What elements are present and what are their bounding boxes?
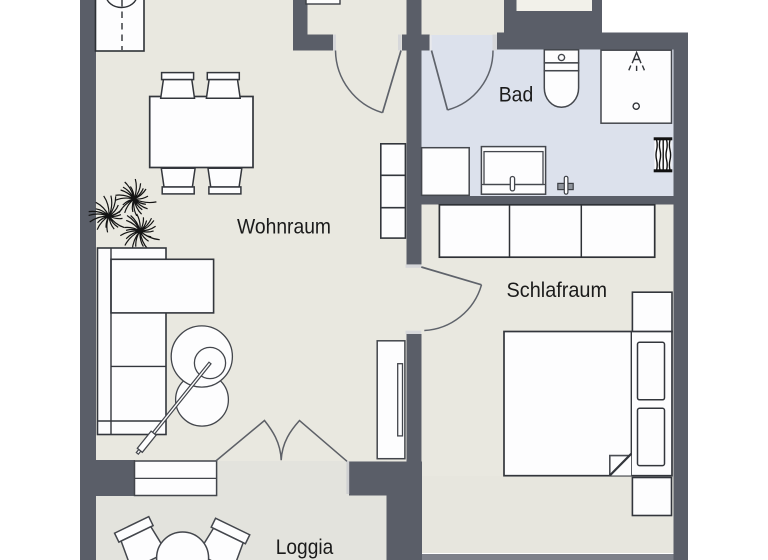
svg-text:Bad: Bad <box>499 83 534 106</box>
svg-text:Wohnraum: Wohnraum <box>237 216 331 239</box>
svg-text:Schlafraum: Schlafraum <box>507 279 608 302</box>
svg-text:Loggia: Loggia <box>276 536 334 559</box>
